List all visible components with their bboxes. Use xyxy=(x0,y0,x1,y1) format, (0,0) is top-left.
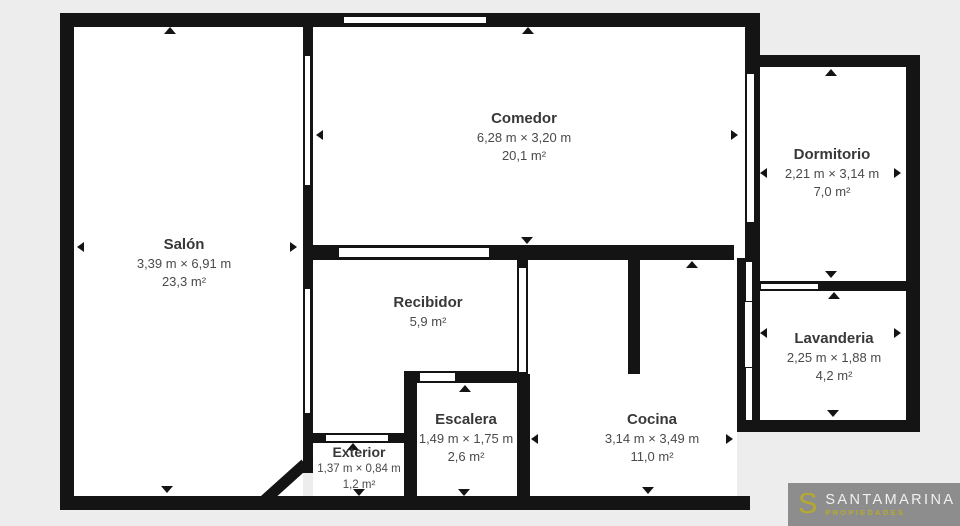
room-area: 5,9 m² xyxy=(348,313,508,331)
dimension-arrow-up-icon xyxy=(828,292,840,299)
room-label-cocina: Cocina 3,14 m × 3,49 m 11,0 m² xyxy=(562,410,742,466)
room-area: 4,2 m² xyxy=(744,367,924,385)
window-comedor-top xyxy=(343,16,487,24)
window-exterior xyxy=(325,434,389,442)
dimension-arrow-up-icon xyxy=(686,261,698,268)
room-label-dormitorio: Dormitorio 2,21 m × 3,14 m 7,0 m² xyxy=(742,145,922,201)
room-name: Salón xyxy=(84,235,284,255)
logo-brand-text: SANTAMARINA xyxy=(825,492,955,508)
dimension-arrow-left-icon xyxy=(77,242,84,252)
dimension-arrow-up-icon xyxy=(825,69,837,76)
room-area: 1,2 m² xyxy=(304,477,414,493)
dimension-arrow-up-icon xyxy=(164,27,176,34)
dimension-arrow-left-icon xyxy=(307,465,313,473)
wall-lavanderia-bottom xyxy=(750,420,920,432)
room-label-comedor: Comedor 6,28 m × 3,20 m 20,1 m² xyxy=(424,109,624,165)
room-label-recibidor: Recibidor 5,9 m² xyxy=(348,293,508,331)
room-recibidor-leg xyxy=(313,260,404,433)
room-label-exterior: Exterior 1,37 m × 0,84 m 1,2 m² xyxy=(304,444,414,493)
door-escalera xyxy=(419,372,456,382)
dimension-arrow-down-icon xyxy=(642,487,654,494)
dimension-arrow-right-icon xyxy=(290,242,297,252)
wall-cocina-stub xyxy=(628,245,640,374)
window-salon-recibidor xyxy=(304,288,311,414)
room-dimensions: 6,28 m × 3,20 m xyxy=(424,129,624,147)
room-dimensions: 1,37 m × 0,84 m xyxy=(317,461,400,477)
dimension-arrow-right-icon xyxy=(405,465,411,473)
room-dimensions: 2,25 m × 1,88 m xyxy=(744,349,924,367)
logo-tagline-text: PROPIEDADES xyxy=(825,508,955,518)
room-dimensions: 1,49 m × 1,75 m xyxy=(419,430,513,448)
room-dimensions: 3,39 m × 6,91 m xyxy=(84,255,284,273)
wall-dormitorio-top xyxy=(750,55,920,67)
room-area: 23,3 m² xyxy=(84,273,284,291)
dimension-arrow-right-icon xyxy=(517,435,523,443)
window-salon-comedor xyxy=(304,55,311,186)
dimension-arrow-left-icon xyxy=(409,435,415,443)
dimension-arrow-down-icon xyxy=(827,410,839,417)
door-dormitorio-lavanderia xyxy=(760,283,819,290)
dimension-arrow-up-icon xyxy=(522,27,534,34)
room-area: 11,0 m² xyxy=(562,448,742,466)
dimension-arrow-right-icon xyxy=(731,130,738,140)
room-name: Dormitorio xyxy=(742,145,922,165)
logo-monogram: S xyxy=(798,490,817,519)
room-name: Cocina xyxy=(562,410,742,430)
room-dimensions-row: 1,37 m × 0,84 m xyxy=(304,461,414,477)
room-area: 7,0 m² xyxy=(742,183,922,201)
agency-logo: S SANTAMARINA PROPIEDADES xyxy=(788,483,960,526)
dimension-arrow-down-icon xyxy=(458,489,470,496)
room-name: Comedor xyxy=(424,109,624,129)
room-label-lavanderia: Lavanderia 2,25 m × 1,88 m 4,2 m² xyxy=(744,329,924,385)
dimension-arrow-down-icon xyxy=(161,486,173,493)
dimension-arrow-down-icon xyxy=(825,271,837,278)
room-name: Exterior xyxy=(304,444,414,461)
dimension-arrow-up-icon xyxy=(459,385,471,392)
dimension-arrow-down-icon xyxy=(521,237,533,244)
opening-comedor-cocina xyxy=(734,245,745,258)
room-dimensions: 2,21 m × 3,14 m xyxy=(742,165,922,183)
floor-plan: Salón 3,39 m × 6,91 m 23,3 m² Comedor 6,… xyxy=(0,0,960,526)
room-dimensions: 3,14 m × 3,49 m xyxy=(562,430,742,448)
room-label-salon: Salón 3,39 m × 6,91 m 23,3 m² xyxy=(84,235,284,291)
window-recibidor-cocina xyxy=(518,267,527,373)
opening-comedor-recibidor xyxy=(338,247,490,258)
room-name: Lavanderia xyxy=(744,329,924,349)
dimension-arrow-left-icon xyxy=(316,130,323,140)
room-area: 20,1 m² xyxy=(424,147,624,165)
room-name: Escalera xyxy=(386,410,546,430)
room-name: Recibidor xyxy=(348,293,508,313)
wall-left-outer xyxy=(60,13,74,510)
